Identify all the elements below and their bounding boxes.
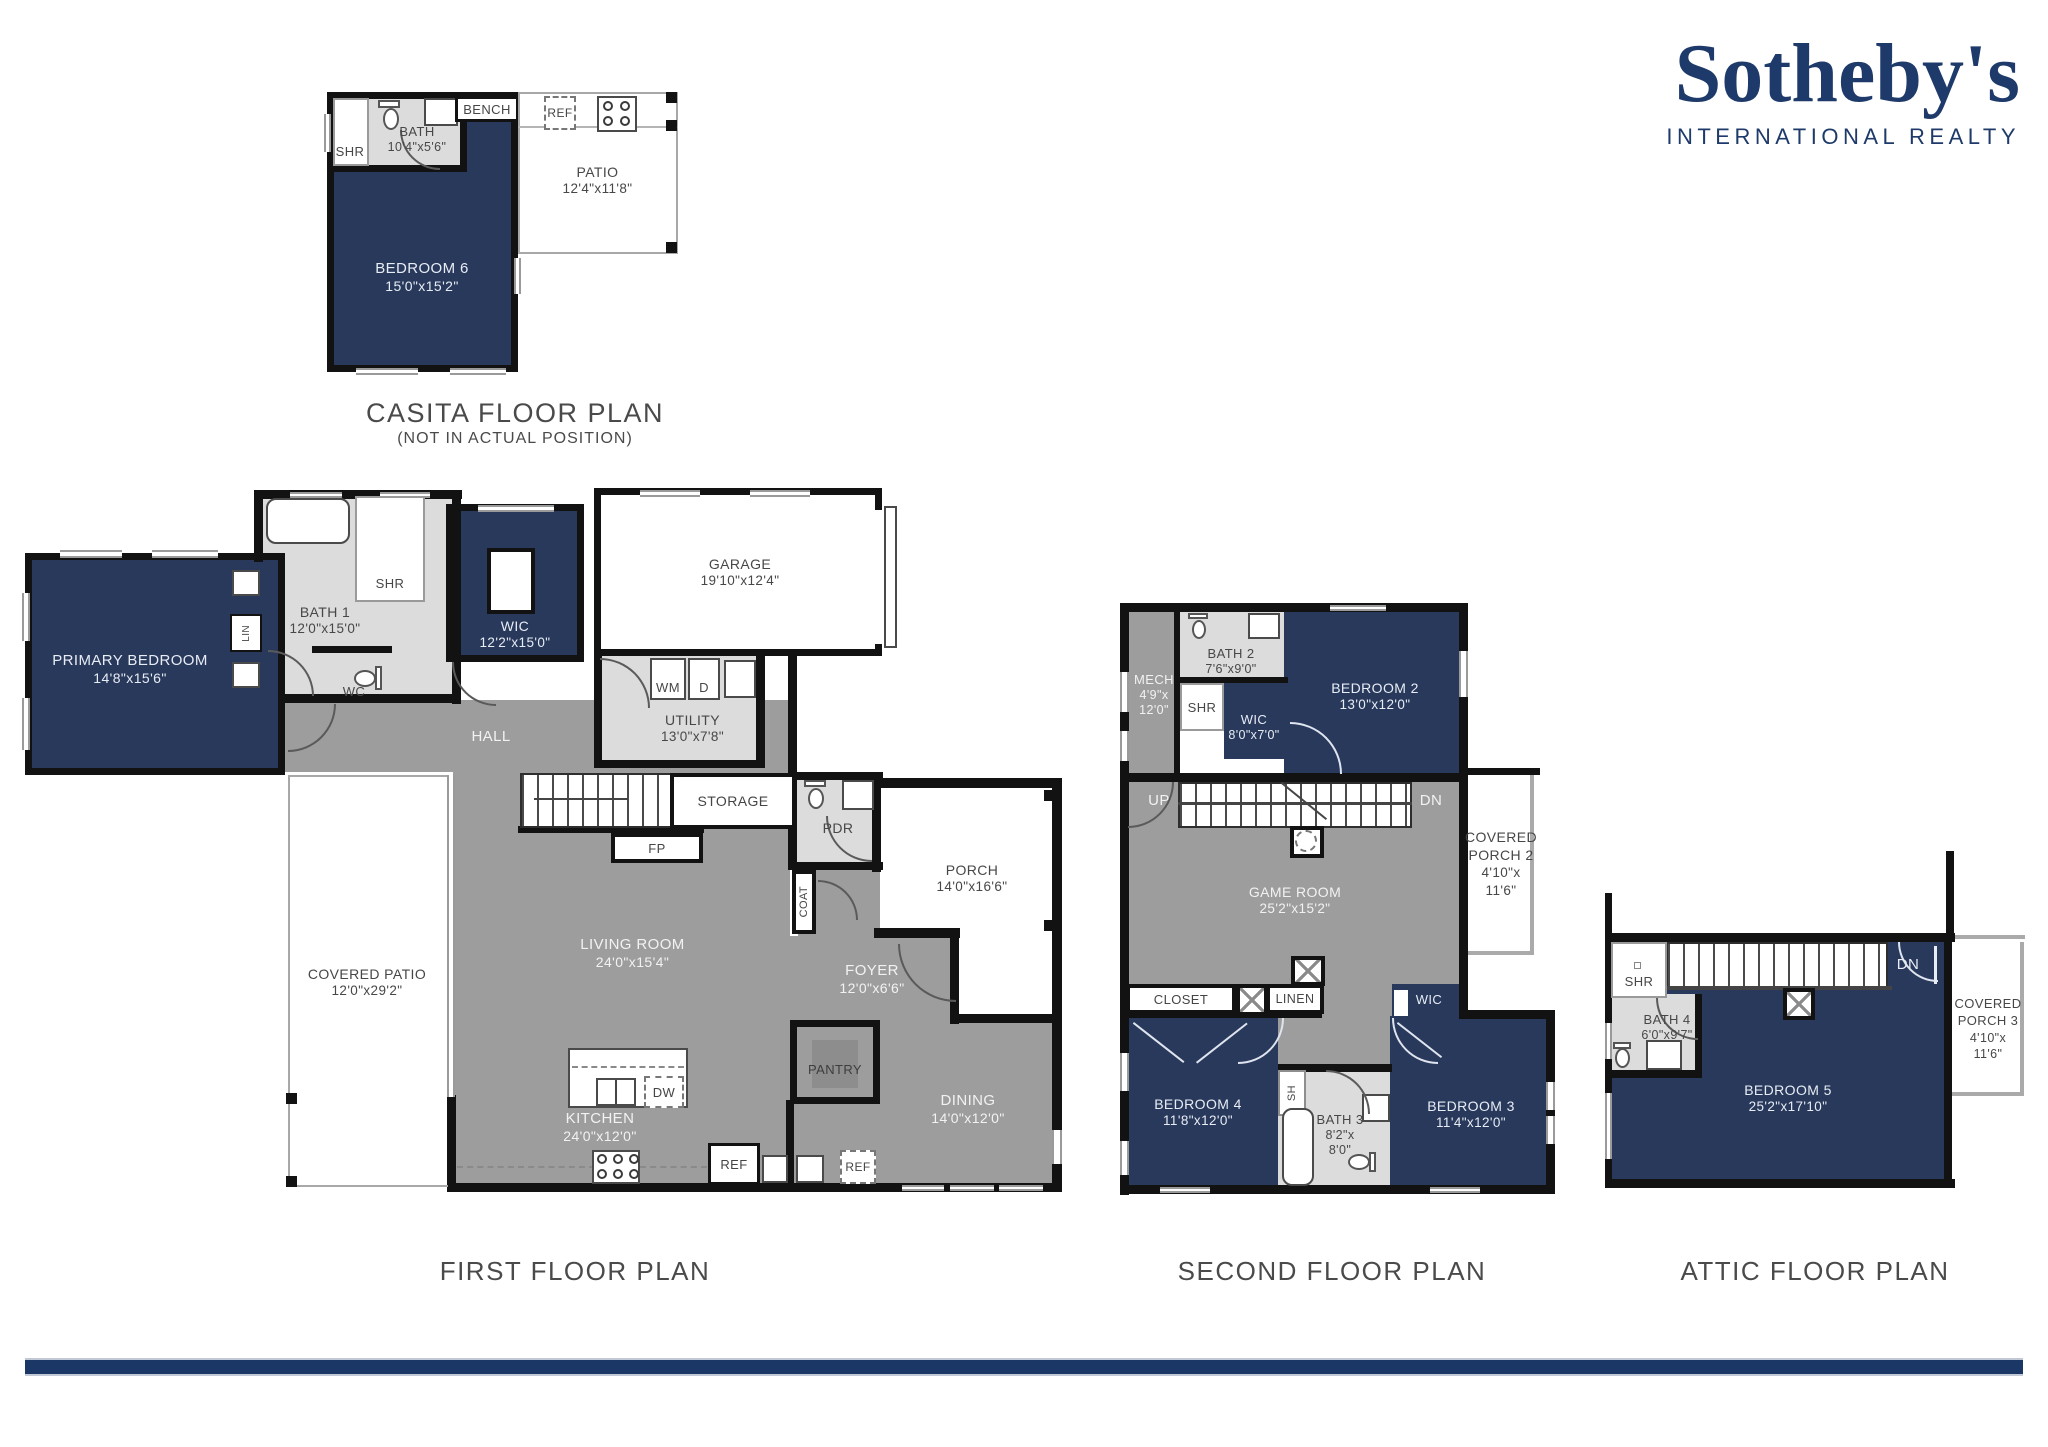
- drain: [1634, 962, 1641, 969]
- post: [1044, 920, 1055, 931]
- room-dims: 19'10"x12'4": [662, 573, 818, 589]
- room-dims: 11'4"x12'0": [1402, 1115, 1540, 1131]
- room-name: WIC: [448, 618, 582, 635]
- d-label: D: [688, 680, 720, 696]
- pdr-text: PDR: [812, 820, 864, 837]
- bedroom5-label: BEDROOM 5 25'2"x17'10": [1718, 1082, 1858, 1116]
- wall: [1120, 773, 1468, 782]
- ref-label: REF: [845, 1160, 870, 1174]
- foyer-label: FOYER 12'0"x6'6": [812, 962, 932, 997]
- dw-label: DW: [653, 1085, 675, 1100]
- window: [1605, 1093, 1612, 1159]
- fridge-icon: REF: [840, 1150, 876, 1184]
- rail-line: [1934, 946, 1937, 984]
- porch-label: PORCH 14'0"x16'6": [908, 862, 1036, 896]
- counter-line: [457, 1166, 707, 1168]
- ref-label: REF: [720, 1157, 747, 1172]
- window: [1546, 1082, 1555, 1110]
- wall: [1459, 1010, 1555, 1019]
- brand-wordmark: Sotheby's: [1450, 28, 2020, 120]
- dn-text: DN: [1886, 956, 1930, 974]
- sink-icon: [424, 98, 458, 126]
- bath2-label: BATH 2 7'6"x9'0": [1183, 646, 1279, 677]
- room-name: PORCH: [908, 862, 1036, 879]
- toilet-icon: [375, 666, 382, 690]
- kitchen-label: KITCHEN 24'0"x12'0": [535, 1110, 665, 1145]
- room-dims: 4'10"x: [1464, 864, 1538, 882]
- room-name: PORCH 3: [1952, 1013, 2024, 1030]
- window: [1120, 1053, 1129, 1091]
- window: [1120, 731, 1129, 761]
- wall: [447, 1095, 456, 1192]
- patio-label: PATIO 12'4"x11'8": [535, 164, 660, 198]
- room-dims: 12'0"x29'2": [302, 983, 432, 999]
- room-dims: 11'6": [1464, 882, 1538, 900]
- window: [1605, 1023, 1612, 1059]
- bench-label: BENCH: [463, 102, 511, 117]
- coat-closet: COAT: [792, 870, 816, 934]
- toilet-icon: [1192, 620, 1206, 639]
- brand-tagline: INTERNATIONAL REALTY: [1450, 124, 2020, 150]
- room-dims: 14'8"x15'6": [30, 670, 230, 687]
- sink-icon: [1248, 613, 1280, 639]
- up-label: UP: [1142, 792, 1176, 810]
- garage-label: GARAGE 19'10"x12'4": [662, 556, 818, 590]
- room-name: BEDROOM 5: [1718, 1082, 1858, 1099]
- room-dims: 8'0"x7'0": [1222, 728, 1286, 743]
- counter-line: [572, 1066, 684, 1068]
- room-dims: 25'2"x17'10": [1718, 1099, 1858, 1115]
- shr-text: SHR: [355, 576, 425, 592]
- dn-label: DN: [1414, 792, 1448, 810]
- room-dims: 8'2"x: [1305, 1128, 1375, 1143]
- room-name: MECH: [1122, 672, 1186, 688]
- wall: [950, 1014, 1062, 1023]
- window: [1430, 1187, 1480, 1193]
- covered-patio-label: COVERED PATIO 12'0"x29'2": [302, 966, 432, 1000]
- shaft-circle: [1295, 830, 1317, 852]
- utility-sink-icon: [724, 660, 756, 698]
- room-dims: 4'9"x: [1122, 688, 1186, 703]
- window: [1546, 1116, 1555, 1144]
- brand-logo: Sotheby's INTERNATIONAL REALTY: [1450, 28, 2020, 150]
- bath4-label: BATH 4 6'0"x9'7": [1627, 1012, 1707, 1043]
- mech-label: MECH 4'9"x 12'0": [1122, 672, 1186, 718]
- room-dims: 25'2"x15'2": [1225, 901, 1365, 917]
- dn-text: DN: [1414, 792, 1448, 810]
- post: [666, 242, 677, 253]
- window: [514, 258, 521, 294]
- shr-label: SHR: [355, 576, 425, 592]
- room-dims: 7'6"x9'0": [1183, 662, 1279, 677]
- room-dims: 24'0"x12'0": [535, 1128, 665, 1145]
- window: [640, 490, 700, 497]
- ref-label: REF: [547, 106, 572, 120]
- window: [999, 1185, 1043, 1191]
- toilet-icon: [1615, 1048, 1630, 1068]
- stair-rail: [1178, 802, 1412, 805]
- d-text: D: [688, 680, 720, 696]
- bathtub-icon: [266, 498, 350, 544]
- room-name: UTILITY: [630, 712, 755, 729]
- room-name: BATH: [372, 124, 462, 140]
- attic-floor-title: ATTIC FLOOR PLAN: [1615, 1256, 2015, 1287]
- window: [1120, 1141, 1129, 1175]
- room-dims: 10'4"x5'6": [372, 140, 462, 155]
- floor-plan-sheet: Sotheby's INTERNATIONAL REALTY BENCH REF…: [0, 0, 2048, 1447]
- casita-plan-title: CASITA FLOOR PLAN: [310, 398, 720, 429]
- wall: [1611, 1070, 1702, 1078]
- room-dims: 4'10"x: [1952, 1030, 2024, 1046]
- window: [950, 1185, 994, 1191]
- window: [356, 368, 418, 375]
- room-dims: 11'8"x12'0": [1130, 1113, 1266, 1129]
- bath1-label: BATH 1 12'0"x15'0": [272, 604, 378, 638]
- room-dims: 13'0"x12'0": [1305, 697, 1445, 713]
- room-name: COVERED: [1464, 828, 1538, 846]
- wic-label: WIC 12'2"x15'0": [448, 618, 582, 652]
- room-storage: STORAGE: [670, 773, 796, 829]
- stairs: [1666, 942, 1888, 990]
- room-dims: 14'0"x16'6": [908, 879, 1036, 895]
- window: [1330, 605, 1386, 611]
- bench: BENCH: [455, 96, 519, 122]
- window: [22, 698, 30, 750]
- wall: [1120, 603, 1468, 612]
- hall-text: HALL: [455, 728, 527, 746]
- room-name: BEDROOM 4: [1130, 1096, 1266, 1113]
- bath-label: BATH 10'4"x5'6": [372, 124, 462, 155]
- wall: [874, 928, 960, 938]
- toilet-icon: [378, 100, 400, 108]
- first-floor-title: FIRST FLOOR PLAN: [375, 1256, 775, 1287]
- window: [902, 1185, 944, 1191]
- window: [1160, 1187, 1210, 1193]
- shr-text: SHR: [330, 144, 370, 160]
- dining-label: DINING 14'0"x12'0": [905, 1092, 1031, 1127]
- stair-arrow: [534, 798, 628, 800]
- room-name: FOYER: [812, 962, 932, 980]
- coat-label: COAT: [798, 886, 810, 917]
- room-name: COVERED PATIO: [302, 966, 432, 983]
- room-dims: 12'0"x6'6": [812, 980, 932, 997]
- wall: [788, 653, 797, 865]
- wm-text: WM: [650, 680, 686, 696]
- garage-door: [884, 506, 897, 648]
- sink-divider: [615, 1080, 617, 1104]
- room-dims: 11'6": [1952, 1046, 2024, 1062]
- covered-porch3-label: COVERED PORCH 3 4'10"x 11'6": [1952, 996, 2024, 1062]
- room-name: LIVING ROOM: [565, 936, 700, 954]
- wall: [1605, 893, 1612, 935]
- room-name: BEDROOM 6: [352, 260, 492, 278]
- post: [666, 120, 677, 131]
- shr-text: SHR: [1611, 974, 1667, 990]
- stove-icon: [597, 96, 637, 132]
- window: [152, 550, 218, 558]
- room-name: BEDROOM 2: [1305, 680, 1445, 697]
- bedroom4-label: BEDROOM 4 11'8"x12'0": [1130, 1096, 1266, 1130]
- stairs: [520, 773, 672, 828]
- wic-bath2-label: WIC 8'0"x7'0": [1222, 712, 1286, 743]
- sink-icon: [232, 662, 260, 688]
- living-room-label: LIVING ROOM 24'0"x15'4": [565, 936, 700, 971]
- room-dims: 12'0": [1122, 703, 1186, 718]
- room-name: KITCHEN: [535, 1110, 665, 1128]
- lin-label: LIN: [241, 625, 252, 642]
- wall: [1462, 768, 1540, 775]
- room-name: COVERED: [1952, 996, 2024, 1013]
- shr-label: SHR: [330, 144, 370, 160]
- sink-icon: [1646, 1040, 1682, 1070]
- wall: [254, 490, 263, 562]
- dishwasher: DW: [644, 1076, 684, 1108]
- closet-label: CLOSET: [1154, 992, 1208, 1007]
- room-name: GARAGE: [662, 556, 818, 573]
- wall: [312, 646, 392, 653]
- room-dims: 12'0"x15'0": [272, 621, 378, 637]
- window-wall: [447, 775, 455, 1097]
- wic-bedroom3-label: WIC: [1406, 992, 1452, 1008]
- room-name: BATH 4: [1627, 1012, 1707, 1028]
- wall: [1605, 1179, 1955, 1188]
- bedroom2-label: BEDROOM 2 13'0"x12'0": [1305, 680, 1445, 714]
- wall: [1605, 933, 1955, 942]
- room-name: PATIO: [535, 164, 660, 181]
- room-name: BATH 1: [272, 604, 378, 621]
- room-dims: 12'4"x11'8": [535, 181, 660, 197]
- skylight-xbox: [1236, 984, 1268, 1016]
- shr-label: SHR: [1180, 700, 1224, 716]
- post: [1044, 790, 1055, 801]
- wall: [1944, 935, 1952, 1182]
- room-name: BEDROOM 3: [1402, 1098, 1540, 1115]
- wm-label: WM: [650, 680, 686, 696]
- wc-label: WC: [332, 684, 376, 700]
- stairs: [1178, 782, 1412, 828]
- wc-text: WC: [332, 684, 376, 700]
- wall: [876, 778, 1062, 788]
- toilet-icon: [808, 788, 824, 809]
- wall-thin: [1955, 935, 2025, 939]
- room-dims: 12'2"x15'0": [448, 635, 582, 651]
- room-name: PORCH 2: [1464, 846, 1538, 864]
- post: [286, 1093, 297, 1104]
- window: [1052, 1130, 1062, 1164]
- fireplace-icon: FP: [611, 833, 703, 863]
- wall: [788, 862, 883, 870]
- linen-label: LINEN: [1276, 992, 1315, 1006]
- accent-bar: [25, 1358, 2023, 1376]
- post: [286, 1176, 297, 1187]
- room-dims: 15'0"x15'2": [352, 278, 492, 295]
- up-text: UP: [1142, 792, 1176, 810]
- pantry-label: PANTRY: [794, 1062, 876, 1078]
- oven-icon: [762, 1155, 788, 1183]
- room-name: WIC: [1222, 712, 1286, 728]
- wall: [756, 653, 765, 768]
- room-dims: 8'0": [1305, 1143, 1375, 1158]
- wall: [594, 760, 764, 768]
- toilet-icon: [1188, 613, 1208, 619]
- shr-label: SHR: [1611, 974, 1667, 990]
- room-name: BATH 2: [1183, 646, 1279, 662]
- bath3-label: BATH 3 8'2"x 8'0": [1305, 1112, 1375, 1158]
- pantry-text: PANTRY: [794, 1062, 876, 1078]
- covered-porch2-label: COVERED PORCH 2 4'10"x 11'6": [1464, 828, 1538, 899]
- fp-label: FP: [648, 841, 665, 856]
- room-dims: 6'0"x9'7": [1627, 1028, 1707, 1043]
- sink-icon: [842, 780, 874, 810]
- room-dims: 13'0"x7'8": [630, 729, 755, 745]
- casita-plan-subtitle: (NOT IN ACTUAL POSITION): [310, 430, 720, 448]
- game-room-label: GAME ROOM 25'2"x15'2": [1225, 884, 1365, 918]
- room-name: DINING: [905, 1092, 1031, 1110]
- oven-icon: [796, 1155, 824, 1183]
- room-name: BATH 3: [1305, 1112, 1375, 1128]
- window: [750, 490, 810, 497]
- room-name: GAME ROOM: [1225, 884, 1365, 901]
- wic-island: [487, 548, 535, 614]
- bedroom3-label: BEDROOM 3 11'4"x12'0": [1402, 1098, 1540, 1132]
- wic-text: WIC: [1406, 992, 1452, 1008]
- wall: [788, 772, 883, 780]
- pdr-label: PDR: [812, 820, 864, 837]
- room-dims: 24'0"x15'4": [565, 954, 700, 971]
- second-floor-title: SECOND FLOOR PLAN: [1132, 1256, 1532, 1287]
- hall-label: HALL: [455, 728, 527, 746]
- window: [60, 550, 122, 558]
- window: [22, 593, 30, 641]
- skylight-xbox: [1291, 956, 1325, 986]
- fridge-icon: REF: [708, 1143, 760, 1185]
- skylight-xbox: [1783, 988, 1815, 1020]
- sink-icon: [232, 570, 260, 596]
- window: [478, 505, 554, 512]
- bedroom6-label: BEDROOM 6 15'0"x15'2": [352, 260, 492, 295]
- fridge-icon: REF: [544, 96, 576, 130]
- wall: [1946, 851, 1954, 935]
- closet: CLOSET: [1126, 984, 1236, 1014]
- stair-rail: [1666, 986, 1892, 990]
- linen-closet: LINEN: [1266, 984, 1324, 1014]
- room-dims: 14'0"x12'0": [905, 1110, 1031, 1127]
- window: [1459, 651, 1468, 697]
- toilet-icon: [804, 780, 826, 787]
- primary-bedroom-label: PRIMARY BEDROOM 14'8"x15'6": [30, 652, 230, 687]
- room-name: PRIMARY BEDROOM: [30, 652, 230, 670]
- dn-label: DN: [1886, 956, 1930, 974]
- sh-label: SH: [1286, 1085, 1298, 1101]
- post: [666, 92, 677, 103]
- utility-label: UTILITY 13'0"x7'8": [630, 712, 755, 746]
- linen-closet: LIN: [230, 614, 262, 652]
- shr-text: SHR: [1180, 700, 1224, 716]
- storage-label: STORAGE: [697, 793, 768, 809]
- window: [450, 368, 506, 375]
